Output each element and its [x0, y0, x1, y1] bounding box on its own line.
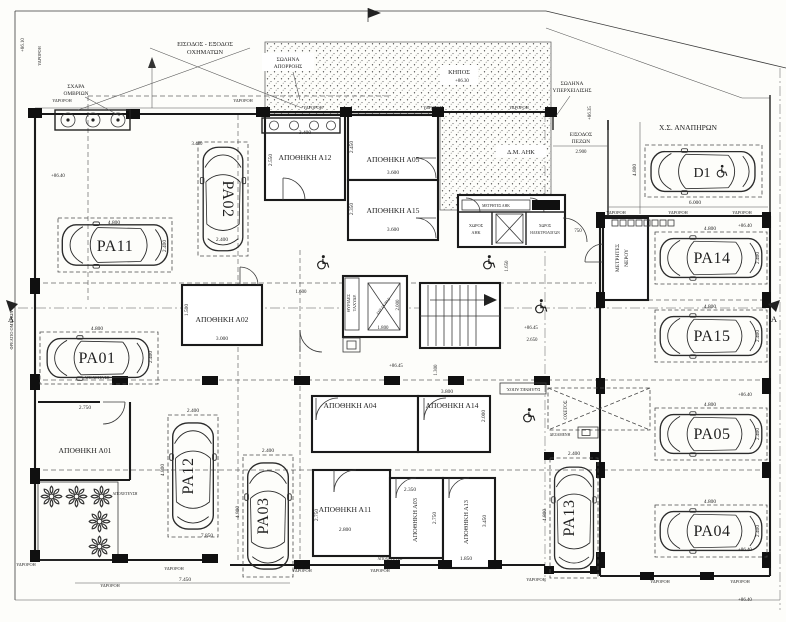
dim-label: 2.800 [339, 527, 351, 533]
dim-label: 6.000 [689, 200, 701, 206]
dim-label: 2.350 [349, 203, 355, 215]
annotation-ahk-meters: ΜΕΤΡΗΤΕΣ ΑΗΚ [482, 204, 510, 208]
annotation-vehicle-entry: ΟΧΗΜΑΤΩΝ [187, 49, 224, 56]
dim-label: 2.450 [349, 141, 355, 153]
sewer-label: ΑΠΟΧΕΤΕΥΣΗ [113, 492, 138, 496]
floor-plan-drawing: PA11 4.800 2.400 PA01 4.800 2.400 PA02 2… [0, 0, 786, 622]
dim-label: 2.400 [755, 525, 761, 537]
dim-label: 2.400 [187, 408, 199, 414]
annotation-mailboxes: ΤΑΧΥΔΡ. [352, 295, 357, 312]
annotation-duct: ΟΧΕΤΟΣ [564, 400, 569, 419]
dim-label: 1.850 [460, 556, 472, 562]
level-marker: +86.10 [21, 38, 26, 52]
dim-label: 4.800 [108, 220, 120, 226]
annotation-pedestrian-entry: ΕΙΣΟΔΟΣ [570, 132, 592, 138]
downspout-label: ΥΔΡΟΡΟΗ [732, 210, 751, 215]
parking-label: PA03 [255, 498, 272, 535]
level-marker: +86.45 [389, 364, 403, 369]
annotation-drain-pipe: ΑΠΟΡΡΟΗΣ [274, 64, 303, 70]
dim-label: 2.400 [162, 240, 168, 252]
dim-label: 3.800 [441, 389, 453, 395]
annotation-dm-ahk: Δ.Μ. ΑΗΚ [507, 149, 535, 156]
annotation-pedestrian-entry: ΠΕΖΩΝ [572, 139, 590, 145]
dim-label: 2.000 [481, 410, 487, 422]
downspout-label: ΥΔΡΟΡΟΗ [233, 98, 252, 103]
annotation-pipes: ΣΩΛΗΝΕΣ ΑΠΟΧ. [506, 387, 540, 392]
dim-label: 4.800 [704, 304, 716, 310]
downspout-label: ΥΔΡΟΡΟΗ [16, 562, 35, 567]
storage-label: ΑΠΟΘΗΚΗ Α15 [367, 206, 420, 215]
level-marker: +86.45 [524, 326, 538, 331]
dim-label: 750 [574, 229, 582, 234]
parking-label: PA15 [694, 328, 731, 345]
parking-label: PA13 [561, 500, 578, 537]
section-letter: A [771, 314, 778, 324]
storage-label: ΑΠΟΘΗΚΗ Α11 [319, 505, 372, 514]
parking-label: PA05 [694, 426, 731, 443]
floor-plan-sheet: PA11 4.800 2.400 PA01 4.800 2.400 PA02 2… [0, 0, 786, 622]
storage-label: ΑΠΟΘΗΚΗ Α14 [426, 401, 479, 410]
dim-label: 2.400 [216, 237, 228, 243]
sewer-label: ΑΠΟΧΕΤΕΥΣΗ [85, 376, 110, 380]
parking-pa15: PA15 4.800 2.400 [655, 304, 767, 362]
downspout-label: ΥΔΡΟΡΟΗ [292, 568, 311, 573]
downspout-label: ΥΔΡΟΡΟΗ [526, 577, 545, 582]
storage-label: ΑΠΟΘΗΚΗ Α13 [463, 500, 470, 544]
dim-label: 4.800 [704, 499, 716, 505]
dim-label: 7.450 [179, 577, 191, 583]
annotation-electricians-room: ΧΩΡΟΣ [539, 224, 551, 228]
downspout-label: ΥΔΡΟΡΟΗ [730, 579, 749, 584]
flower-icon [91, 486, 112, 507]
storage-label: ΑΠΟΘΗΚΗ Α03 [412, 498, 419, 542]
annotation-grate: ΣΧΑΡΑ [67, 84, 84, 90]
downspout-label: ΥΔΡΟΡΟΗ [370, 568, 389, 573]
dim-label: 4.800 [91, 326, 103, 332]
annotation-overflow-pipe: ΣΩΛΗΝΑ [561, 81, 584, 87]
dim-label: 2.550 [268, 154, 274, 166]
dim-label: 4.800 [235, 506, 241, 518]
dim-label: 1.600 [295, 290, 307, 295]
downspout-label: ΥΔΡΟΡΟΗ [423, 105, 442, 110]
downspout-label: ΥΔΡΟΡΟΗ [37, 46, 42, 65]
parking-d1: D1 [645, 145, 762, 197]
annotation-drain-pipe: ΣΩΛΗΝΑ [277, 57, 300, 63]
annotation-water-meters: ΜΕΤΡΗΤΕΣ [615, 244, 621, 272]
storage-label: ΑΠΟΘΗΚΗ Α01 [59, 446, 112, 455]
level-marker: +86.40 [738, 598, 752, 603]
dim-label: 4.800 [160, 464, 166, 476]
parking-pa03: PA03 2.400 4.800 [235, 448, 293, 577]
wheelchair-icon [318, 255, 329, 269]
wheelchair-icon [717, 165, 727, 177]
dim-label: 2.400 [755, 428, 761, 440]
dim-label: 3.600 [387, 170, 399, 176]
parking-label: PA01 [79, 350, 116, 367]
downspout-label: ΥΔΡΟΡΟΗ [606, 210, 625, 215]
dim-label: 2.750 [79, 405, 91, 411]
dim-label: 2.900 [575, 150, 587, 155]
annotation-overflow-pipe: ΥΠΕΡΧΕΙΛΙΣΗΣ [553, 88, 592, 94]
dim-label: 4.800 [632, 164, 638, 176]
downspout-label: ΥΔΡΟΡΟΗ [509, 105, 528, 110]
level-marker: +86.40 [738, 548, 752, 553]
annotation-electricians-room: ΗΛΕΚΤΡΟΛΟΓΩΝ [530, 231, 560, 235]
dim-label: 3.480 [191, 142, 203, 147]
annotation-vehicle-entry: ΕΙΣΟΔΟΣ - ΕΞΟΔΟΣ [177, 41, 233, 48]
dim-label: 2.400 [755, 252, 761, 264]
dim-label: 1.500 [184, 304, 190, 316]
parking-pa12: PA12 2.400 4.800 [160, 408, 218, 537]
flower-icon [41, 486, 62, 507]
storage-label: ΑΠΟΘΗΚΗ Α04 [324, 401, 377, 410]
parking-label: D1 [693, 166, 710, 181]
north-arrow-icon [368, 8, 381, 22]
dim-label: 2.000 [396, 299, 401, 311]
storage-label: ΑΠΟΘΗΚΗ Α12 [279, 153, 332, 162]
storage-label: ΑΠΟΘΗΚΗ Α05 [367, 155, 420, 164]
parking-label: PA04 [694, 523, 731, 540]
dim-label: 2.400 [262, 448, 274, 454]
section-letter: A [8, 314, 15, 324]
downspout-label: ΥΔΡΟΡΟΗ [164, 566, 183, 571]
parking-pa14: PA14 4.800 2.400 [655, 226, 767, 284]
flower-icon [66, 486, 87, 507]
dim-label: 3.450 [482, 515, 488, 527]
flower-icon [89, 536, 110, 557]
downspout-label: ΥΔΡΟΡΟΗ [303, 105, 322, 110]
downspout-label: ΥΔΡΟΡΟΗ [668, 210, 687, 215]
dim-label: 2.400 [755, 330, 761, 342]
level-marker: +86.40 [51, 174, 65, 179]
sewer-label: ΑΠΟΧΕΤΕΥΣΗ [378, 557, 403, 561]
wheelchair-icon [524, 408, 535, 422]
dim-label: 7.850 [201, 533, 213, 539]
ramp-grate-icon [55, 110, 130, 130]
wheelchair-icon [484, 255, 495, 269]
downspout-label: ΥΔΡΟΡΟΗ [100, 583, 119, 588]
parking-label: PA02 [219, 181, 236, 218]
annotation-mailboxes: ΘΥΡΙΔΕΣ [346, 294, 351, 312]
annotation-ahk-room: ΧΩΡΟΣ [469, 223, 484, 228]
dim-label: 1.650 [505, 260, 510, 272]
dim-label: 3.600 [387, 227, 399, 233]
planting-icons [41, 486, 112, 557]
parking-pa02: PA02 2.400 [198, 142, 248, 256]
annotation-garden-level: +86.30 [455, 79, 469, 84]
dim-label: 3.000 [216, 336, 228, 342]
annotation-disabled-space: Χ.Σ. ΑΝΑΠΗΡΩΝ [659, 123, 717, 132]
annotation-ahk-room: ΑΗΚ [471, 230, 481, 235]
dim-label: 2.400 [568, 451, 580, 457]
dim-label: 3.400 [299, 130, 311, 136]
parking-label: PA11 [97, 238, 133, 255]
dim-label: 4.800 [704, 402, 716, 408]
flower-icon [89, 511, 110, 532]
dim-label: 2.350 [404, 487, 416, 493]
annotation-water-meters: ΝΕΡΟΥ [624, 249, 630, 267]
annotation-tank: ΔΕΞΑΜΕΝΗ [550, 433, 571, 437]
dim-label: 4.800 [542, 509, 548, 521]
parking-pa05: PA05 4.800 2.400 [655, 402, 767, 460]
room-a01 [38, 402, 130, 480]
level-marker: +86.40 [738, 393, 752, 398]
parking-pa11: PA11 4.800 2.400 [58, 218, 172, 272]
dim-label: 1.800 [377, 326, 389, 331]
level-marker: +86.40 [738, 224, 752, 229]
downspout-label: ΥΔΡΟΡΟΗ [650, 579, 669, 584]
dim-label: 4.800 [704, 226, 716, 232]
parking-label: PA14 [694, 250, 731, 267]
dim-label: 2.750 [314, 509, 320, 521]
annotation-grate: ΟΜΒΡΙΩΝ [64, 91, 89, 97]
downspout-label: ΥΔΡΟΡΟΗ [52, 98, 71, 103]
dim-label: 2.750 [432, 512, 438, 524]
annotation-garden: ΚΗΠΟΣ [448, 69, 470, 76]
dim-label: 1.300 [434, 364, 439, 376]
dim-label: 2.400 [148, 351, 154, 363]
level-marker: +86.35 [588, 106, 593, 120]
storage-label: ΑΠΟΘΗΚΗ Α02 [196, 315, 249, 324]
dim-label: 2.650 [526, 338, 538, 343]
parking-label: PA12 [180, 458, 197, 495]
